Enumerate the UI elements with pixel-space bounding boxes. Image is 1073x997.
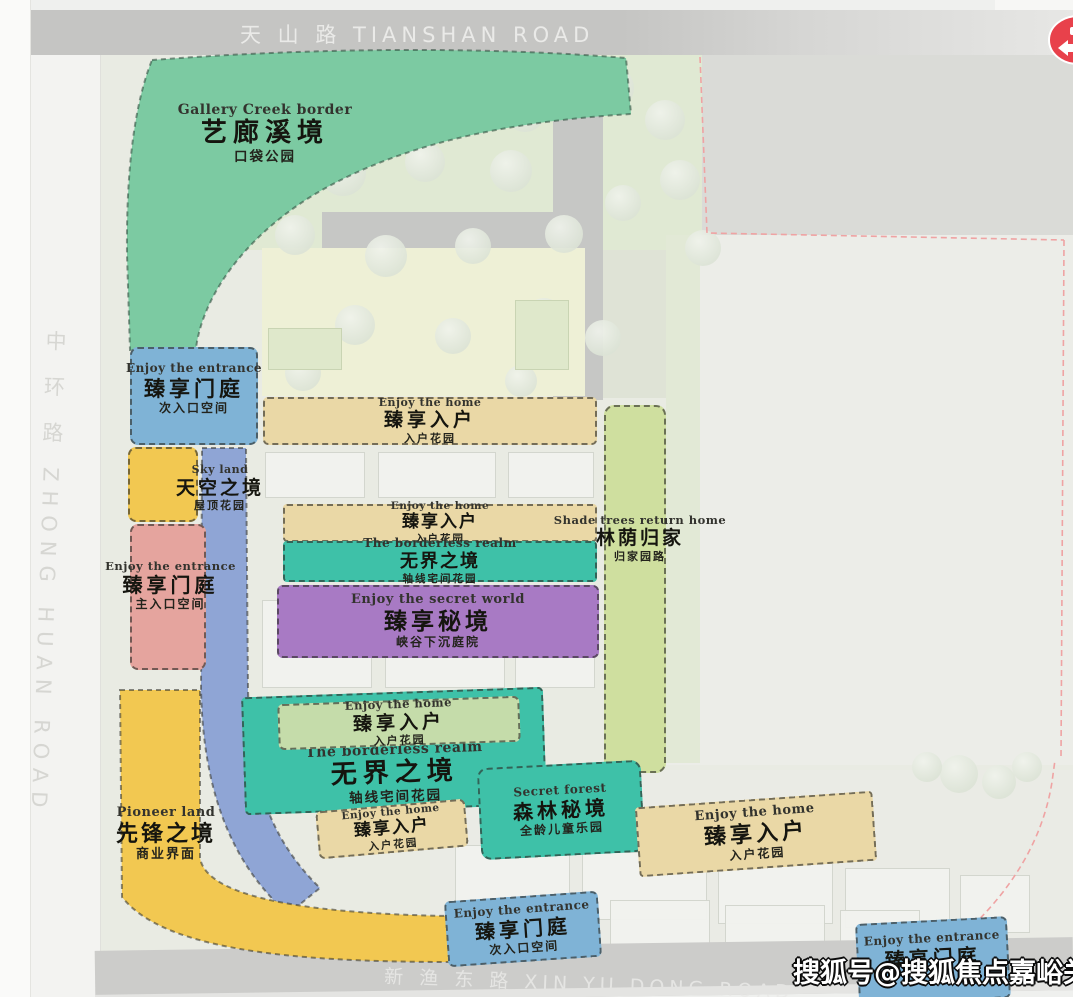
zone-cn-label: 臻享秘境	[384, 609, 492, 635]
label-pioneer: Pioneer land 先锋之境 商业界面	[92, 806, 240, 863]
zone-sub-label: 屋顶花园	[194, 499, 246, 512]
zone-cn-label: 臻享门庭	[123, 574, 219, 597]
zone-en-label: Gallery Creek border	[178, 102, 352, 118]
zone-en-label: Enjoy the entrance	[126, 362, 262, 376]
zone-sub-label: 商业界面	[136, 847, 196, 863]
zone-cn-label: 天空之境	[176, 478, 264, 500]
zone-shade-trees-band	[604, 405, 666, 773]
zone-en-label: Enjoy the entrance	[105, 560, 236, 573]
zone-entrance-bottom: Enjoy the entrance 臻享门庭 次入口空间	[444, 891, 602, 968]
zone-en-label: Pioneer land	[117, 806, 216, 821]
zone-en-label: Shade trees return home	[554, 514, 726, 527]
label-shade-trees: Shade trees return home 林荫归家 归家园路	[565, 514, 715, 563]
zone-en-label: Enjoy the home	[379, 397, 482, 410]
zone-cn-label: 无界之境	[330, 757, 459, 791]
zone-sub-label: 轴线宅间花园	[403, 573, 478, 586]
zone-cn-label: 臻享门庭	[144, 377, 244, 401]
zone-home-lower: Enjoy the home 臻享入户 入户花园	[277, 696, 520, 750]
zone-home-top: Enjoy the home 臻享入户 入户花园	[263, 397, 597, 445]
label-sky-land: Sky land 天空之境 屋顶花园	[140, 464, 300, 513]
zone-sub-label: 全龄儿童乐园	[520, 819, 605, 838]
zone-sub-label: 归家园路	[614, 550, 666, 563]
zone-en-label: The borderless realm	[363, 537, 516, 551]
label-gallery-creek: Gallery Creek border 艺廊溪境 口袋公园	[160, 102, 370, 165]
zone-en-label: Sky land	[192, 464, 249, 477]
zone-secret-forest: Secret forest 森林秘境 全龄儿童乐园	[477, 760, 646, 860]
zone-en-label: Enjoy the home	[391, 500, 489, 512]
zone-cn-label: 臻享入户	[402, 513, 478, 533]
zone-sub-label: 入户花园	[404, 432, 456, 445]
zone-cn-label: 先锋之境	[116, 822, 216, 847]
zone-cn-label: 无界之境	[400, 552, 480, 573]
zone-sub-label: 入户花园	[729, 845, 786, 863]
gallery-creek-band	[127, 50, 631, 350]
zone-en-label: Enjoy the secret world	[351, 593, 525, 608]
zone-sub-label: 口袋公园	[234, 149, 296, 165]
site-plan-map: 天 山 路 TIANSHAN ROAD 中 环 路 ZHONG HUAN ROA…	[0, 0, 1073, 997]
zone-borderless-mid: The borderless realm 无界之境 轴线宅间花园	[283, 541, 597, 582]
watermark-text: 搜狐号@搜狐焦点嘉峪关站	[793, 951, 1073, 990]
zone-cn-label: 艺廊溪境	[201, 119, 329, 149]
label-entrance-main: Enjoy the entrance 臻享门庭 主入口空间	[88, 560, 253, 612]
zone-secret-world: Enjoy the secret world 臻享秘境 峡谷下沉庭院	[277, 585, 599, 658]
zone-sub-label: 峡谷下沉庭院	[396, 635, 480, 649]
zone-cn-label: 臻享入户	[384, 410, 476, 432]
sohu-logo-icon	[1048, 14, 1073, 66]
zone-cn-label: 林荫归家	[596, 528, 684, 550]
zone-sub-label: 主入口空间	[135, 597, 205, 611]
zone-cn-label: 臻享入户	[353, 711, 446, 736]
zone-entrance-secondary-left: Enjoy the entrance 臻享门庭 次入口空间	[130, 347, 258, 445]
zone-sub-label: 次入口空间	[159, 401, 229, 415]
zone-sub-label: 入户花园	[373, 734, 425, 749]
